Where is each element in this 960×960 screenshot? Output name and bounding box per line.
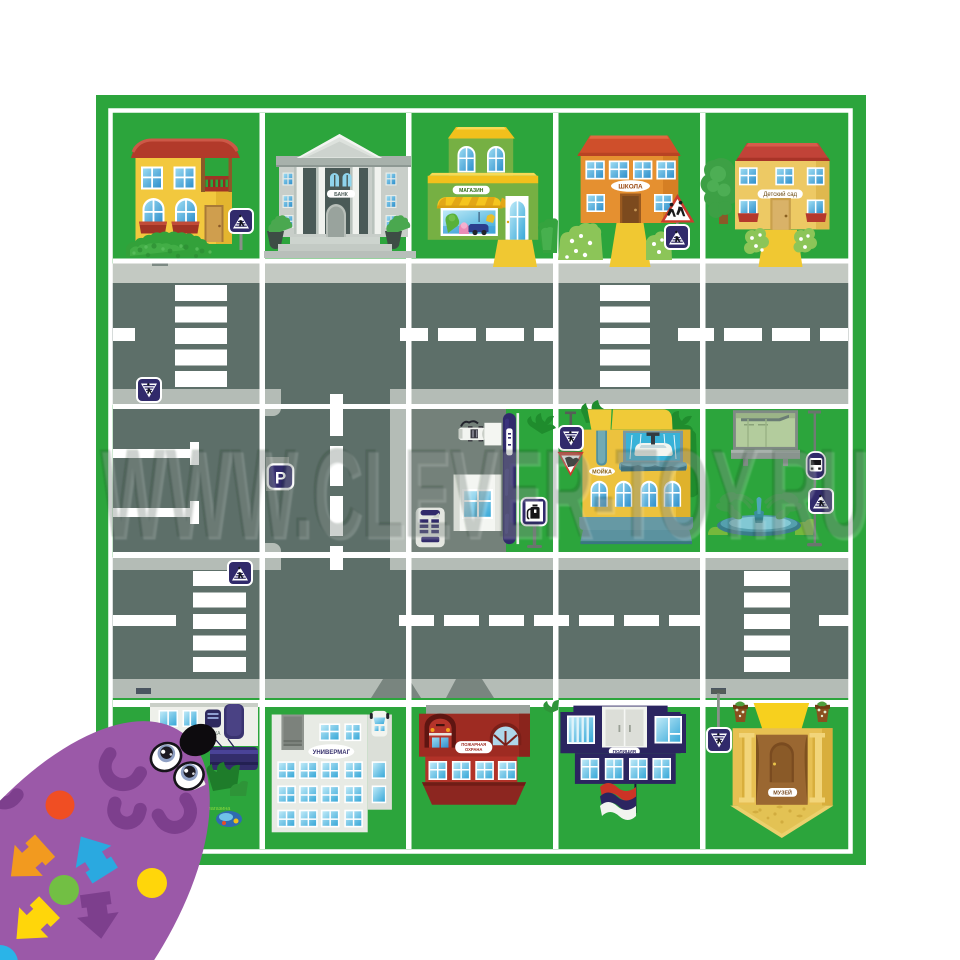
svg-text:WWW.CLEVER-TOY.RU: WWW.CLEVER-TOY.RU: [101, 424, 869, 565]
svg-text:БАНК: БАНК: [334, 192, 349, 198]
svg-text:МУЗЕЙ: МУЗЕЙ: [773, 789, 792, 797]
svg-text:ШКОЛА: ШКОЛА: [618, 184, 643, 191]
svg-text:УНИВЕРМАГ: УНИВЕРМАГ: [313, 750, 351, 756]
svg-text:Детский сад: Детский сад: [763, 191, 797, 198]
svg-text:ОХРАНА: ОХРАНА: [465, 747, 482, 752]
svg-text:МАГАЗИН: МАГАЗИН: [459, 188, 484, 194]
